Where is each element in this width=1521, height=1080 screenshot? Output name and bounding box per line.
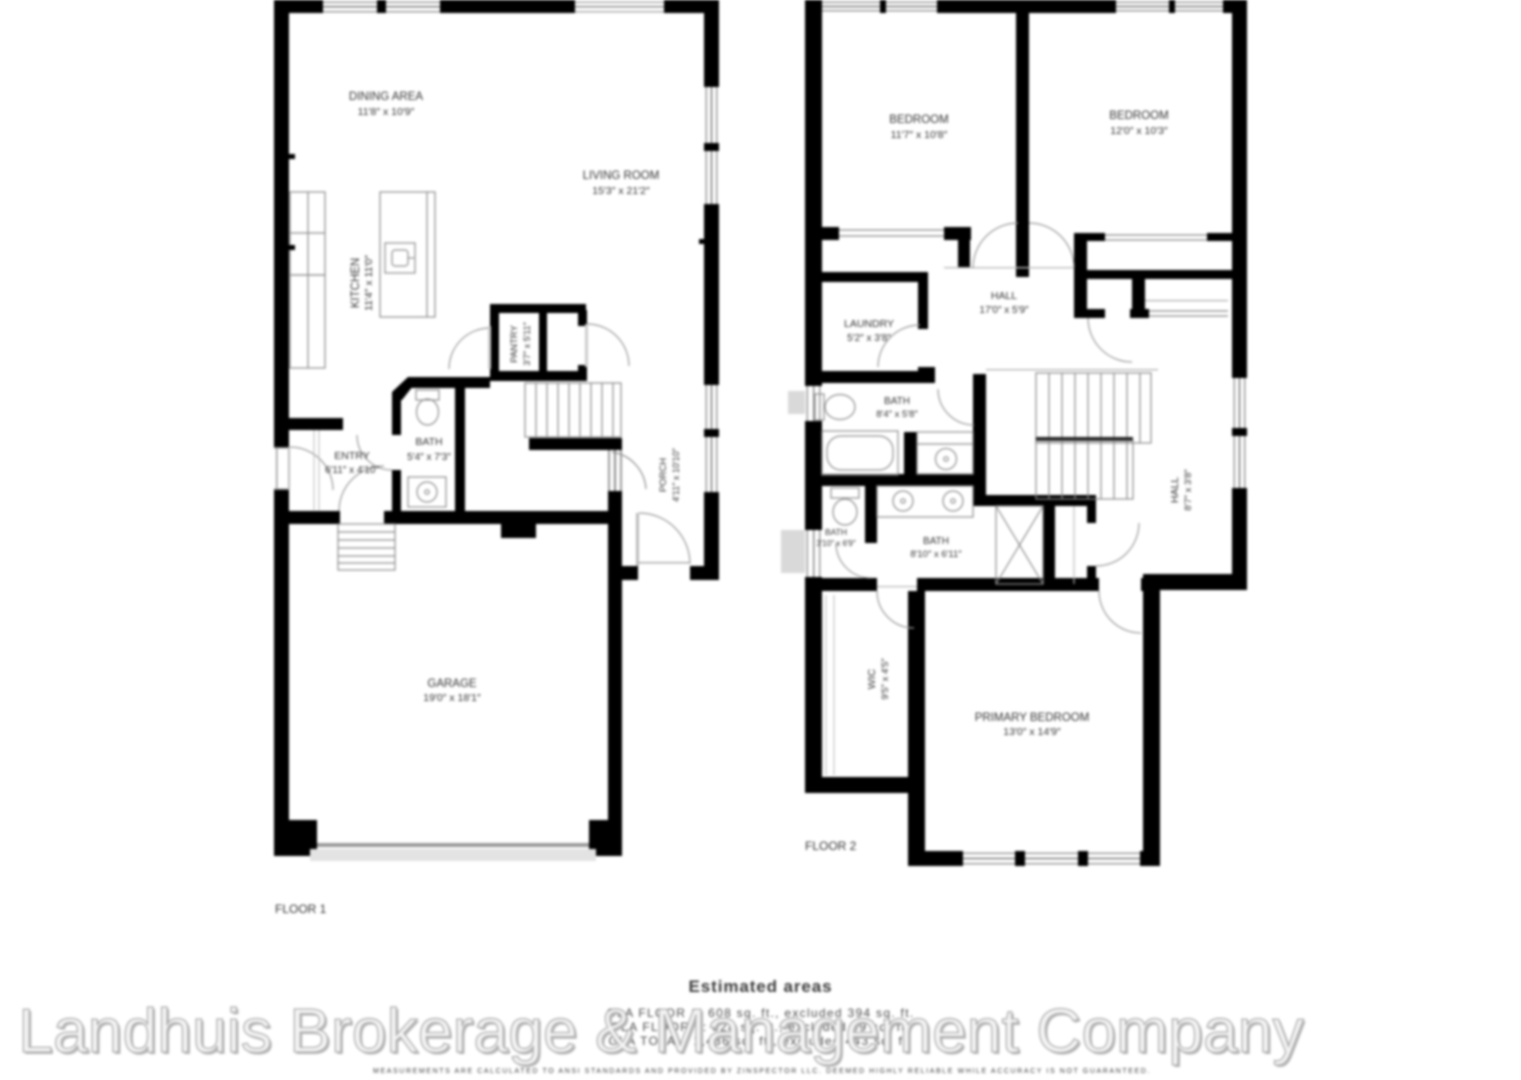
svg-text:Landhuis Brokerage & Managemen: Landhuis Brokerage & Management Company [18,996,1304,1066]
